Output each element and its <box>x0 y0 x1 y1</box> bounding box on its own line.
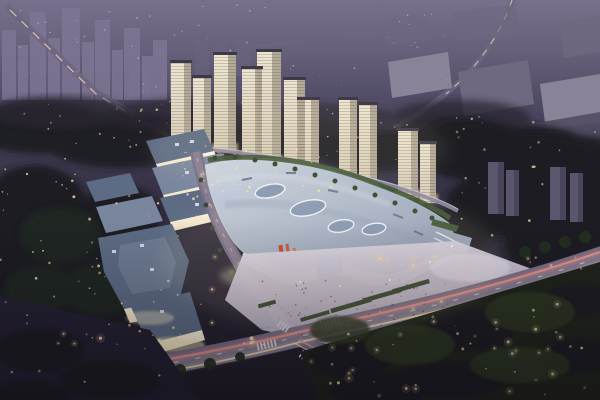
architectural-rendering <box>0 0 600 400</box>
rendering-canvas <box>0 0 600 400</box>
vignette <box>0 0 600 400</box>
